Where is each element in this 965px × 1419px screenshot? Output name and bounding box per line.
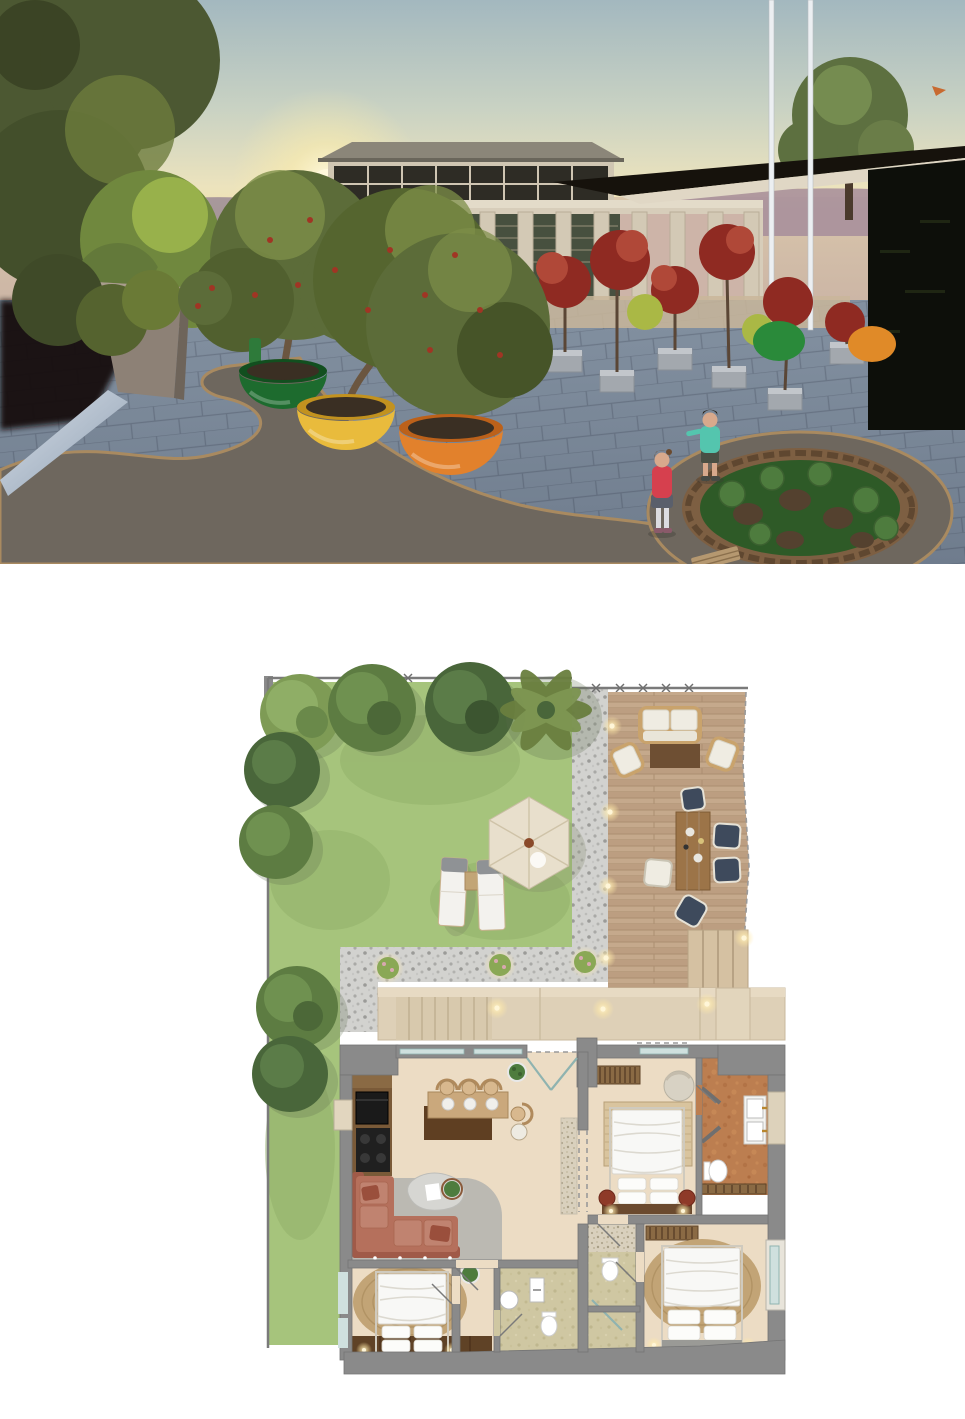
wood-mat <box>702 1184 766 1194</box>
place-setting <box>486 1098 498 1110</box>
bedroom3-window <box>338 1318 348 1348</box>
green-bin <box>249 338 261 364</box>
sliding-glass-door <box>474 1049 522 1054</box>
dining-table <box>676 812 710 890</box>
site-floor-plan <box>0 564 965 1419</box>
plan-scene <box>0 564 965 1419</box>
table-plant <box>444 1181 460 1197</box>
slatted-bench <box>596 1066 640 1084</box>
lime-tree <box>627 294 663 330</box>
door-gap <box>598 1215 628 1224</box>
dark-building <box>868 160 965 430</box>
exterior-render-3d <box>0 0 965 564</box>
bathroom2-pebble-strip <box>588 1222 640 1252</box>
magazine <box>425 1183 441 1201</box>
left-wall-niche <box>334 1100 352 1130</box>
parasol-hub <box>524 838 534 848</box>
round-garden-bed <box>682 448 918 564</box>
potted-plant <box>509 1064 525 1080</box>
dining-chair <box>644 859 673 888</box>
outdoor-rug <box>650 744 700 768</box>
dining-chair <box>713 857 740 882</box>
boy-head <box>703 413 718 428</box>
walkway-step-block <box>716 988 750 1040</box>
door-gap <box>636 1252 644 1282</box>
plate <box>694 854 703 863</box>
plate <box>686 828 695 837</box>
sliding-glass-door <box>400 1049 464 1054</box>
girl-head <box>655 453 670 468</box>
deck-sofa <box>638 706 702 744</box>
boy-shirt <box>700 426 720 453</box>
place-setting <box>464 1098 476 1110</box>
dining-chair <box>681 787 706 812</box>
pillow <box>650 1178 678 1190</box>
render-scene <box>0 0 965 564</box>
toilet <box>541 1312 557 1336</box>
pillow <box>382 1326 410 1338</box>
toilet <box>602 1258 618 1281</box>
door-gap <box>452 1276 460 1304</box>
timber-deck <box>596 692 754 990</box>
bottle <box>683 844 688 849</box>
roof-fascia <box>318 158 624 162</box>
hipped-roof <box>318 142 624 160</box>
bedroom3-window <box>338 1272 348 1314</box>
side-chair <box>511 1124 527 1140</box>
pillow <box>650 1192 678 1204</box>
cooktop <box>356 1128 390 1172</box>
toilet <box>704 1160 727 1182</box>
pillow <box>414 1326 442 1338</box>
pillow <box>414 1340 442 1352</box>
flagpole-right <box>808 0 813 330</box>
throw-pillow <box>361 1185 380 1202</box>
pillow <box>668 1310 700 1324</box>
place-setting <box>442 1098 454 1110</box>
pillow <box>704 1310 736 1324</box>
pillow <box>668 1326 700 1340</box>
pebble-runner <box>561 1118 577 1214</box>
vanity-niche <box>768 1092 785 1144</box>
door-gap <box>494 1310 500 1336</box>
basin <box>747 1099 763 1118</box>
bedroom2-window-glass <box>770 1246 779 1304</box>
coffee-table <box>408 1173 465 1210</box>
dining-chair <box>713 823 741 849</box>
round-basin <box>500 1291 518 1309</box>
master-window <box>640 1048 688 1054</box>
door-gap <box>456 1260 498 1268</box>
architectural-presentation <box>0 0 965 1419</box>
pillow <box>382 1340 410 1352</box>
potted-plant <box>462 1266 478 1282</box>
girl-leggings <box>656 506 661 530</box>
basin <box>747 1122 763 1141</box>
slatted-bench <box>646 1226 698 1240</box>
pillow <box>618 1192 646 1204</box>
girl-top <box>652 466 672 498</box>
pillow <box>618 1178 646 1190</box>
bowl <box>698 838 704 844</box>
walkway-steps <box>396 997 492 1040</box>
pillow <box>704 1326 736 1340</box>
small-green-pot <box>753 321 805 361</box>
small-orange-pot <box>848 326 896 362</box>
throw-pillow <box>429 1225 451 1243</box>
oven <box>356 1092 388 1124</box>
